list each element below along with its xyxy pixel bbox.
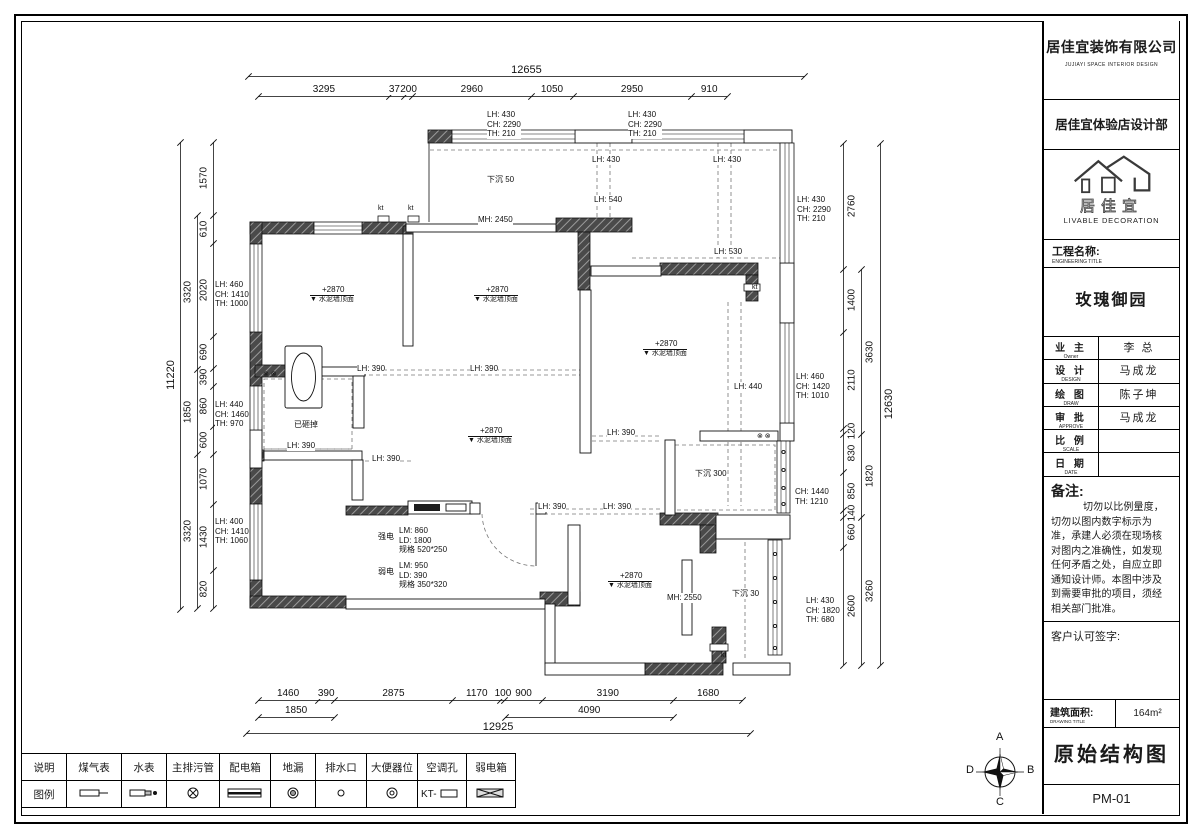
legend-item-label: 排水口 [316, 754, 367, 781]
legend-item-label: 水表 [122, 754, 167, 781]
plan-annotation: +2870▼ 水泥墙顶面 [468, 426, 512, 445]
dimension-label: 100 [494, 688, 513, 699]
plan-annotation: kt [752, 284, 757, 292]
compass: A B C D [965, 734, 1035, 810]
plan-annotation: LH: 390 [603, 502, 631, 512]
personnel-role: 日 期DATE [1044, 453, 1099, 476]
company-name-en: JUJIAYI SPACE INTERIOR DESIGN [1044, 62, 1179, 68]
dimension-label: 1680 [696, 688, 720, 699]
plan-annotation: CH: 1440 TH: 1210 [795, 487, 829, 506]
plan-annotation: LH: 540 [594, 195, 622, 205]
dimension-label: 860 [199, 397, 210, 416]
legend-item-label: 煤气表 [67, 754, 122, 781]
plan-annotation: LH: 430 CH: 2290 TH: 210 [487, 110, 521, 139]
personnel-row: 绘 图DRAW陈子坤 [1044, 384, 1179, 407]
compass-label-c: C [996, 796, 1004, 808]
dimension-label: 610 [199, 219, 210, 238]
legend-item-label: 弱电箱 [467, 754, 516, 781]
plan-annotation: +2870▼ 水泥墙顶面 [643, 339, 687, 358]
dimension-label: 820 [199, 579, 210, 598]
plan-annotation: +2870▼ 水泥墙顶面 [474, 285, 518, 304]
dimension-label: 12655 [510, 64, 543, 76]
ac-hole-icon: KT- [418, 781, 467, 808]
dimension-label: 1850 [284, 705, 308, 716]
plan-annotation: LH: 440 CH: 1460 TH: 970 [215, 400, 249, 429]
plan-annotation: LH: 390 [538, 502, 566, 512]
dimension-label: 910 [700, 84, 719, 95]
dimension-label: 3630 [865, 339, 876, 363]
plan-annotation: LH: 390 [607, 428, 635, 438]
company-name: 居佳宜装饰有限公司 [1044, 37, 1179, 57]
ac-hole [378, 216, 389, 222]
personnel-name [1099, 430, 1179, 453]
plan-annotation: LH: 530 [714, 247, 742, 257]
plan-annotation: LH: 400 CH: 1410 TH: 1060 [215, 517, 249, 546]
plan-annotation: kt [378, 205, 383, 213]
legend-table: 说明煤气表水表主排污管配电箱地漏排水口大便器位空调孔弱电箱图例KT- [21, 753, 516, 808]
outline-walls [250, 130, 794, 675]
plan-annotation: LH: 460 CH: 1420 TH: 1010 [796, 372, 830, 401]
personnel-name: 李 总 [1099, 337, 1179, 360]
dimension-label: 3320 [183, 280, 194, 304]
plan-annotation: MH: 2450 [478, 215, 513, 225]
dimension-label: 140 [847, 504, 858, 523]
dimension-label: 830 [847, 443, 858, 462]
dimension-label: 2110 [847, 369, 858, 393]
drawing-sheet: 3295370200296010502950910126551460390287… [0, 0, 1200, 836]
logo-subtitle: LIVABLE DECORATION [1044, 216, 1179, 225]
legend-item-label: 地漏 [271, 754, 316, 781]
plan-annotation: 下沉 300 [695, 469, 727, 479]
toilet-icon [367, 781, 418, 808]
dimension-label: 2960 [460, 84, 484, 95]
dimension-label: 11220 [165, 359, 177, 391]
compass-label-d: D [966, 764, 974, 776]
personnel-role: 业 主Owner [1044, 337, 1099, 360]
project-label-en: ENGINEERING TITLE [1052, 259, 1179, 265]
dimension-label: 2950 [620, 84, 644, 95]
dimension-label: 600 [199, 431, 210, 450]
plan-annotation: LH: 430 CH: 2290 TH: 210 [628, 110, 662, 139]
personnel-row: 审 批APPROVE马成龙 [1044, 407, 1179, 430]
title-block: 居佳宜装饰有限公司 JUJIAYI SPACE INTERIOR DESIGN … [1042, 21, 1179, 814]
plan-annotation: LH: 430 CH: 2290 TH: 210 [797, 195, 831, 224]
dimension-label: 120 [847, 422, 858, 441]
dimension-label: 1430 [199, 525, 210, 549]
dimension-label: 1400 [847, 288, 858, 312]
compass-label-b: B [1027, 764, 1034, 776]
dimension-label: 900 [514, 688, 533, 699]
door-swing-arc [482, 514, 536, 566]
plan-annotation: 已砸掉 [294, 420, 318, 430]
personnel-name: 马成龙 [1099, 360, 1179, 383]
ac-hole [408, 216, 419, 222]
area-label-en: DRAWING TITLE [1050, 719, 1115, 724]
plan-annotation: +2870▼ 水泥墙顶面 [608, 571, 652, 590]
bathtub [285, 346, 322, 408]
dimension-label: 1570 [199, 166, 210, 190]
dimension-label: 660 [847, 522, 858, 541]
plan-annotation: LH: 430 CH: 1820 TH: 680 [806, 596, 840, 625]
weak-current-box-icon [467, 781, 516, 808]
personnel-row: 设 计DESIGN马成龙 [1044, 360, 1179, 383]
plan-annotation: LH: 390 [287, 441, 315, 451]
project-name: 玫瑰御园 [1044, 268, 1179, 337]
windows [250, 130, 794, 655]
dimension-label: 2760 [847, 194, 858, 218]
dimension-label: 3190 [596, 688, 620, 699]
client-signature-label: 客户认可签字: [1044, 622, 1179, 700]
plan-annotation: LH: 440 [734, 382, 762, 392]
dimension-label: 1850 [183, 399, 194, 423]
personnel-row: 业 主Owner李 总 [1044, 337, 1179, 360]
drain-outlet-icon [316, 781, 367, 808]
plan-annotation: ⊗ ⊗ [263, 371, 277, 379]
dimension-label: 2020 [199, 278, 210, 302]
personnel-name [1099, 453, 1179, 476]
project-label: 工程名称: [1052, 243, 1179, 259]
area-value: 164m² [1116, 700, 1179, 727]
dimension-label: 690 [199, 343, 210, 362]
area-label: 建筑面积: [1050, 704, 1115, 719]
personnel-role: 审 批APPROVE [1044, 407, 1099, 430]
legend-item-label: 大便器位 [367, 754, 418, 781]
dimension-label: 850 [847, 482, 858, 501]
plan-annotation: +2870▼ 水泥墙顶面 [310, 285, 354, 304]
plan-annotation: 强电 [378, 532, 394, 542]
dimension-label: 4090 [577, 705, 601, 716]
plan-annotation: LM: 860 LD: 1800 规格 520*250 [399, 526, 447, 555]
beam-dashed-lines [264, 143, 788, 660]
plan-annotation: LH: 460 CH: 1410 TH: 1000 [215, 280, 249, 309]
personnel-name: 马成龙 [1099, 407, 1179, 430]
dimension-label: 1460 [276, 688, 300, 699]
dimension-label: 1050 [540, 84, 564, 95]
company-logo: 居佳宜 LIVABLE DECORATION [1044, 150, 1179, 240]
compass-label-a: A [996, 731, 1003, 743]
main-drain-icon [167, 781, 220, 808]
plan-annotation: 弱电 [378, 567, 394, 577]
plan-annotation: LH: 430 [713, 155, 741, 165]
notes-label: 备注: [1051, 481, 1172, 501]
personnel-role: 比 例SCALE [1044, 430, 1099, 453]
dimension-label: 3295 [312, 84, 336, 95]
dimension-label: 12630 [883, 388, 895, 421]
dimension-label: 12925 [482, 721, 515, 733]
plan-annotation: kt [408, 205, 413, 213]
legend-header: 说明 [22, 754, 67, 781]
dimension-label: 2600 [847, 594, 858, 618]
ac-hole [710, 644, 728, 651]
plan-annotation: 下沉 30 [732, 589, 759, 599]
dimension-label: 390 [317, 688, 336, 699]
personnel-table: 业 主Owner李 总设 计DESIGN马成龙绘 图DRAW陈子坤审 批APPR… [1044, 337, 1179, 477]
dimension-label: 1170 [465, 688, 489, 699]
plan-annotation: LH: 390 [372, 454, 400, 464]
drawing-title: 原始结构图 [1044, 728, 1179, 785]
plan-annotation: kt [721, 652, 726, 660]
svg-text:KT-: KT- [421, 789, 437, 799]
plan-annotation: LM: 950 LD: 390 规格 350*320 [399, 561, 447, 590]
legend-item-label: 主排污管 [167, 754, 220, 781]
plan-annotation: ⊗ ⊗ [757, 433, 771, 441]
counter-appliance [414, 504, 440, 511]
personnel-row: 比 例SCALE [1044, 430, 1179, 453]
legend-symbol-row-header: 图例 [22, 781, 67, 808]
legend-item-label: 空调孔 [418, 754, 467, 781]
house-logo-icon [1067, 154, 1157, 194]
drawing-number: PM-01 [1044, 785, 1179, 814]
notes-text: 切勿以比例量度，切勿以图内数字标示为准，承建人必须在现场核对图内之准确性，如发现… [1051, 501, 1172, 617]
plan-annotation: LH: 430 [592, 155, 620, 165]
personnel-name: 陈子坤 [1099, 384, 1179, 407]
dimension-label: 3320 [183, 519, 194, 543]
dimension-label: 1070 [199, 467, 210, 491]
plan-annotation: 下沉 50 [487, 175, 514, 185]
department-name: 居佳宜体验店设计部 [1044, 100, 1179, 150]
plan-annotation: LH: 390 [357, 364, 385, 374]
plan-annotation: MH: 2550 [667, 593, 702, 603]
gas-meter-icon [67, 781, 122, 808]
dimension-label: 3260 [865, 579, 876, 603]
dimension-label: 1820 [865, 463, 876, 487]
logo-text: 居佳宜 [1044, 195, 1179, 216]
dimension-label: 2875 [381, 688, 405, 699]
personnel-row: 日 期DATE [1044, 453, 1179, 476]
plan-annotation: LH: 390 [470, 364, 498, 374]
floor-drain-icon [271, 781, 316, 808]
legend-item-label: 配电箱 [220, 754, 271, 781]
water-meter-icon [122, 781, 167, 808]
power-box-icon [220, 781, 271, 808]
dimension-label: 390 [199, 368, 210, 387]
personnel-role: 绘 图DRAW [1044, 384, 1099, 407]
personnel-role: 设 计DESIGN [1044, 360, 1099, 383]
